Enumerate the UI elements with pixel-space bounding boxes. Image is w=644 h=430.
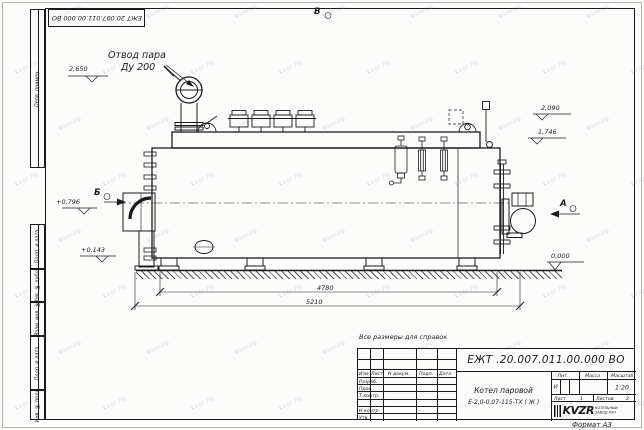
margin-label: Инв. № дубл. bbox=[34, 268, 40, 302]
tb-product-line1: Котел паровой bbox=[474, 386, 533, 395]
tb-scale-value: 1:20 bbox=[615, 385, 629, 391]
title-block: Изм. Лист N докум. Подп. Дата Разраб. Пр… bbox=[357, 348, 635, 420]
tb-header-sign: Подп. bbox=[419, 372, 433, 377]
logo-text: KVZR bbox=[563, 404, 594, 417]
tb-product-line2: Е-2,0-0,07-115-ТХ ( Ж ) bbox=[468, 398, 539, 405]
tb-row-tkontr: Т.контр. bbox=[359, 393, 379, 398]
tb-header-doc: N докум. bbox=[388, 372, 410, 377]
water-level-gauges bbox=[390, 136, 448, 185]
lifting-lug bbox=[459, 124, 476, 132]
callout-steam-outlet-line2: Ду 200 bbox=[121, 62, 155, 73]
view-label-b: Б bbox=[94, 188, 100, 198]
view-label-v: В bbox=[314, 7, 320, 17]
margin-box-inv-podl: Инв. № подл. bbox=[30, 390, 46, 420]
margin-box-inv-dubl: Инв. № дубл. bbox=[30, 269, 46, 302]
top-valves bbox=[228, 111, 316, 133]
tb-lit-header: Лит. bbox=[558, 373, 569, 378]
tb-header-date: Дата bbox=[439, 372, 451, 377]
format-label: Формат А3 bbox=[572, 421, 612, 429]
margin-label: Подп. и дата bbox=[34, 346, 40, 380]
feed-pump bbox=[502, 193, 536, 238]
dimension-overall-length: 5210 bbox=[306, 298, 323, 306]
elevation-steam-outlet: 2,650 bbox=[69, 65, 88, 73]
company-name: КОТЕЛЬНЫЙ ЗАВОД РЭП bbox=[595, 407, 618, 415]
gauge-rod bbox=[483, 102, 493, 148]
reference-note: Все размеры для справок bbox=[359, 333, 447, 341]
tb-mass-header: Масса bbox=[585, 373, 600, 378]
elevation-burner-axis: +0,796 bbox=[56, 198, 80, 206]
elevation-ground: 0,000 bbox=[551, 252, 570, 260]
margin-label: Перв. примен. bbox=[34, 70, 40, 107]
margin-box-perv-primen: Перв. примен. bbox=[30, 9, 46, 168]
tb-sheets-label: Листов bbox=[596, 397, 613, 402]
logo-barcode-icon bbox=[554, 405, 561, 417]
tb-scale-header: Масштаб bbox=[611, 373, 633, 378]
tb-sheet-value: 1 bbox=[580, 397, 583, 402]
steam-valve bbox=[164, 66, 203, 132]
top-stamp-box: ЕЖТ 20.007.011.00.000 ВО bbox=[48, 9, 145, 27]
view-arrows bbox=[104, 13, 580, 218]
tb-product-name: Котел паровой Е-2,0-0,07-115-ТХ ( Ж ) bbox=[456, 373, 551, 419]
tb-header-izm: Изм. bbox=[359, 372, 370, 377]
tb-row-prov: Пров. bbox=[359, 386, 373, 391]
margin-box-podp-data-1: Подп. и дата bbox=[30, 224, 46, 269]
tb-row-razrab: Разраб. bbox=[359, 379, 377, 384]
tb-sheets-value: 2 bbox=[626, 397, 629, 402]
margin-box-podp-data-2: Подп. и дата bbox=[30, 336, 46, 390]
tb-row-utv: Утв. bbox=[359, 415, 369, 420]
tb-doc-number: ЕЖТ .20.007.011.00.000 ВО bbox=[458, 351, 634, 369]
dashed-fitting bbox=[449, 110, 463, 124]
support-skids bbox=[159, 258, 477, 270]
view-label-a: А bbox=[560, 199, 567, 209]
ground-hatch bbox=[136, 271, 562, 279]
tb-lit-value: И bbox=[554, 385, 558, 390]
elevation-top-right-upper: 2,090 bbox=[541, 104, 560, 112]
company-logo: KVZR КОТЕЛЬНЫЙ ЗАВОД РЭП bbox=[554, 402, 634, 419]
drawing-sheet: kvzr.rukvzr.rukvzr.rukvzr.rukvzr.rukvzr.… bbox=[0, 0, 644, 430]
elevation-lower-left: +0,143 bbox=[81, 246, 105, 254]
elevation-marks bbox=[62, 76, 584, 270]
callout-leader bbox=[166, 65, 194, 87]
callout-steam-outlet-line1: Отвод пара bbox=[108, 50, 166, 61]
margin-label: Инв. № подл. bbox=[34, 388, 40, 423]
margin-label: Взам. инв. № bbox=[34, 302, 40, 336]
tb-sheet-label: Лист bbox=[554, 397, 566, 402]
elevation-top-right-lower: 1,746 bbox=[538, 128, 557, 136]
manhole bbox=[193, 241, 215, 254]
company-name-line2: ЗАВОД РЭП bbox=[595, 411, 618, 415]
dimension-inner-length: 4780 bbox=[317, 284, 334, 292]
margin-label: Подп. и дата bbox=[34, 230, 40, 264]
tb-row-nkontr: Н.контр. bbox=[359, 408, 380, 413]
margin-box-vzam-inv: Взам. инв. № bbox=[30, 302, 46, 336]
top-stamp-number: ЕЖТ 20.007.011.00.000 ВО bbox=[52, 14, 142, 21]
tb-header-list: Лист bbox=[371, 372, 383, 377]
